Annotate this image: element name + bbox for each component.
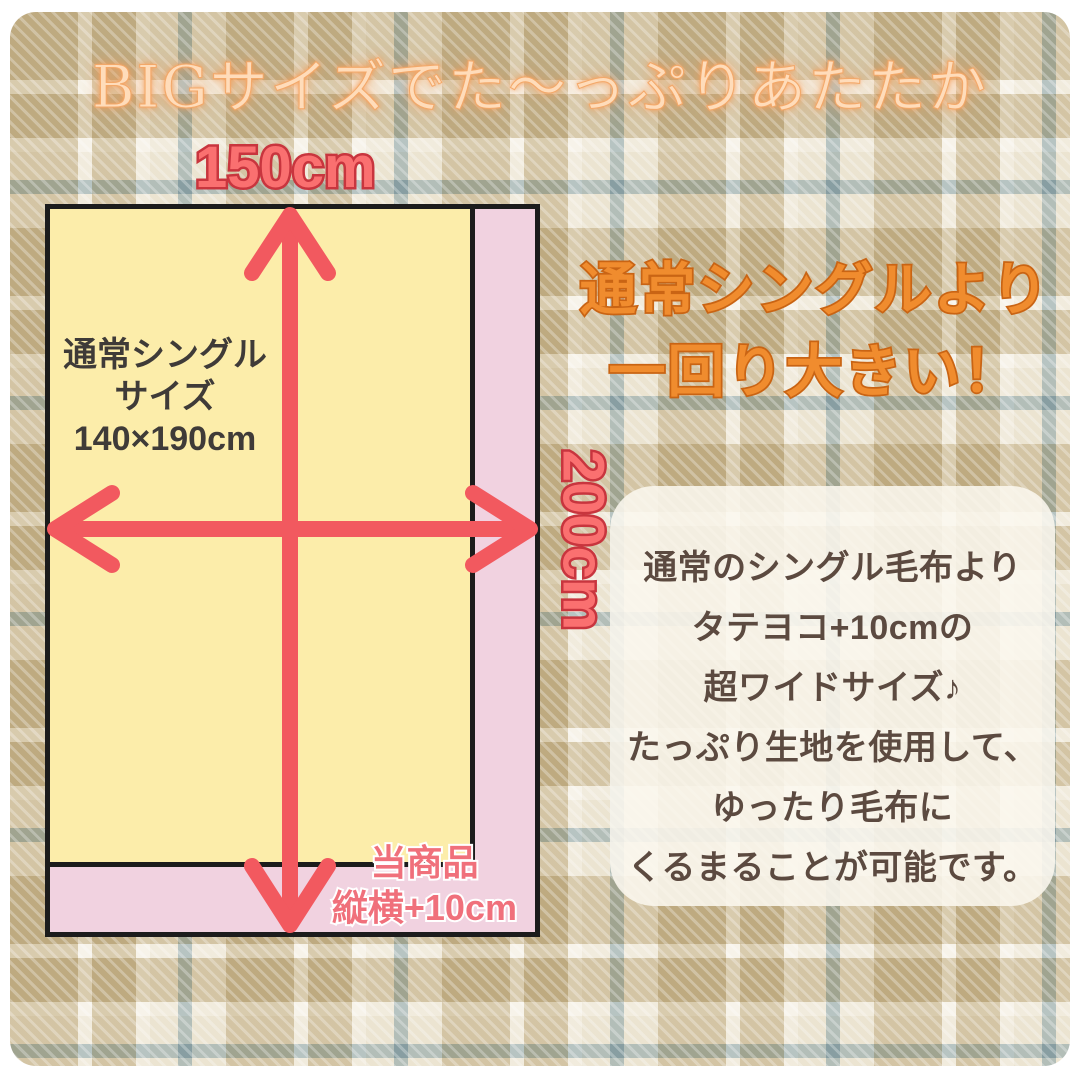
infographic-root: BIGサイズでた〜っぷりあたたか 150cm 通常シングル サイズ 140×19… [0,0,1080,1080]
width-measurement-label: 150cm [195,134,376,201]
height-measurement-label: 200cm [550,432,616,647]
headline-line2: 一回り大きい！ [575,338,1055,406]
plaid-background: BIGサイズでた〜っぷりあたたか 150cm 通常シングル サイズ 140×19… [10,12,1070,1066]
description-box: 通常のシングル毛布より タテヨコ+10cmの 超ワイドサイズ♪ たっぷり生地を使… [610,486,1055,906]
product-size-label-line2: 縦横+10cm [332,885,517,930]
description-line: たっぷり生地を使用して、 [610,718,1055,778]
page-title: BIGサイズでた〜っぷりあたたか [10,40,1070,124]
headline: 通常シングルより 一回り大きい！ [575,256,1055,406]
product-size-label: 当商品 縦横+10cm [332,840,517,930]
measurement-arrows [50,209,535,932]
description-line: タテヨコ+10cmの [610,598,1055,658]
description-line: ゆったり毛布に [610,778,1055,838]
description-line: くるまることが可能です。 [610,838,1055,898]
headline-line1: 通常シングルより [575,256,1055,324]
description-line: 超ワイドサイズ♪ [610,658,1055,718]
description-line: 通常のシングル毛布より [610,538,1055,598]
vertical-arrow [252,215,328,925]
product-size-label-line1: 当商品 [332,840,517,885]
height-measurement-text: 200cm [550,449,617,630]
size-comparison-diagram: 通常シングル サイズ 140×190cm [45,204,540,937]
